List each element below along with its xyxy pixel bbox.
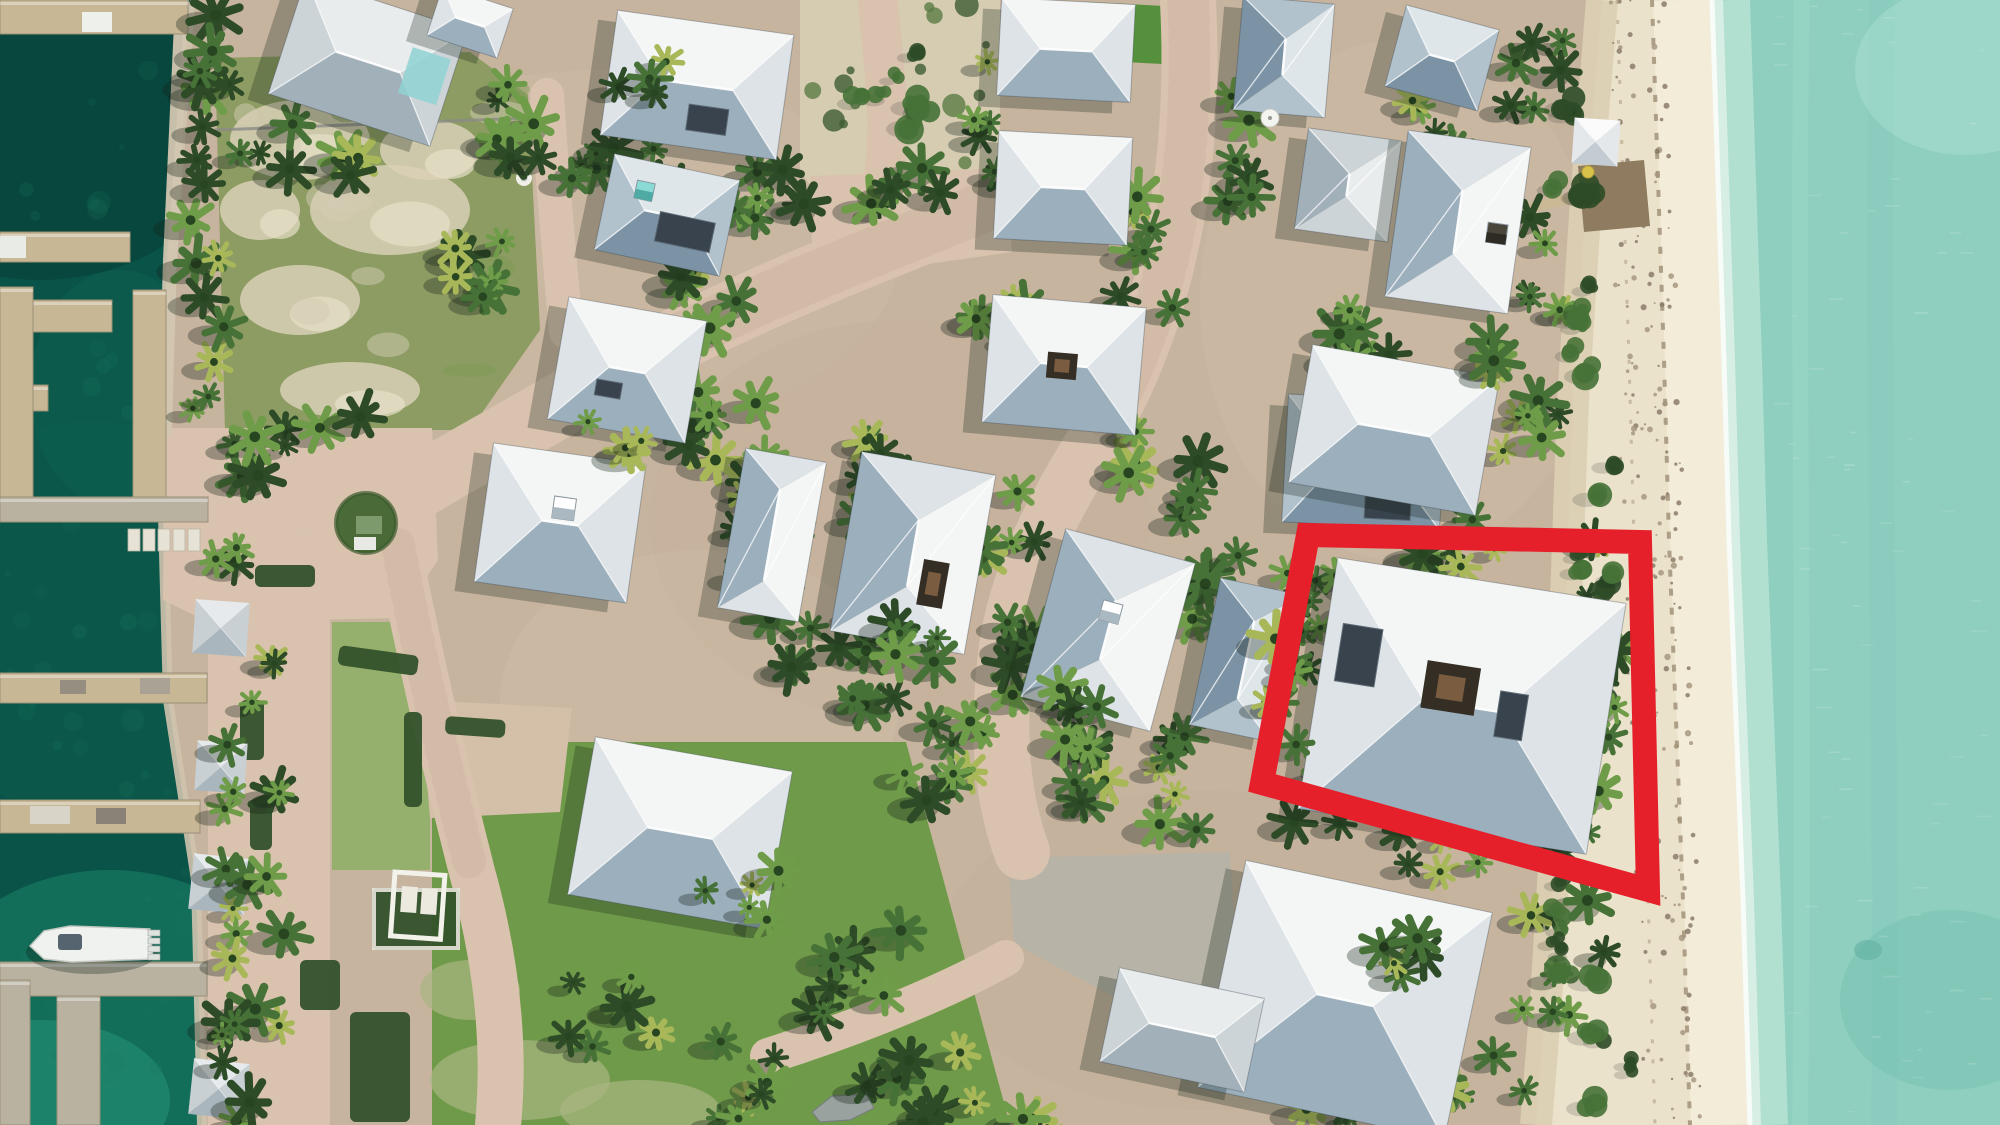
aerial-photo-canvas [0, 0, 2000, 1125]
gazebo-roof [1571, 117, 1620, 166]
house-villa-mid-north-2 [975, 130, 1133, 258]
house-villa-mid-north-1 [978, 0, 1136, 114]
house-villa-mid-west [527, 294, 706, 455]
house-villa-highlighted [1278, 555, 1626, 866]
ocean-water [1712, 0, 2000, 1125]
house-villa-beach-compound [1365, 128, 1531, 326]
gazebo-roof [192, 599, 250, 657]
house-villa-mid [963, 293, 1147, 447]
aerial-photo: Aerial drone photo: beachfront resort co… [0, 0, 2000, 1125]
